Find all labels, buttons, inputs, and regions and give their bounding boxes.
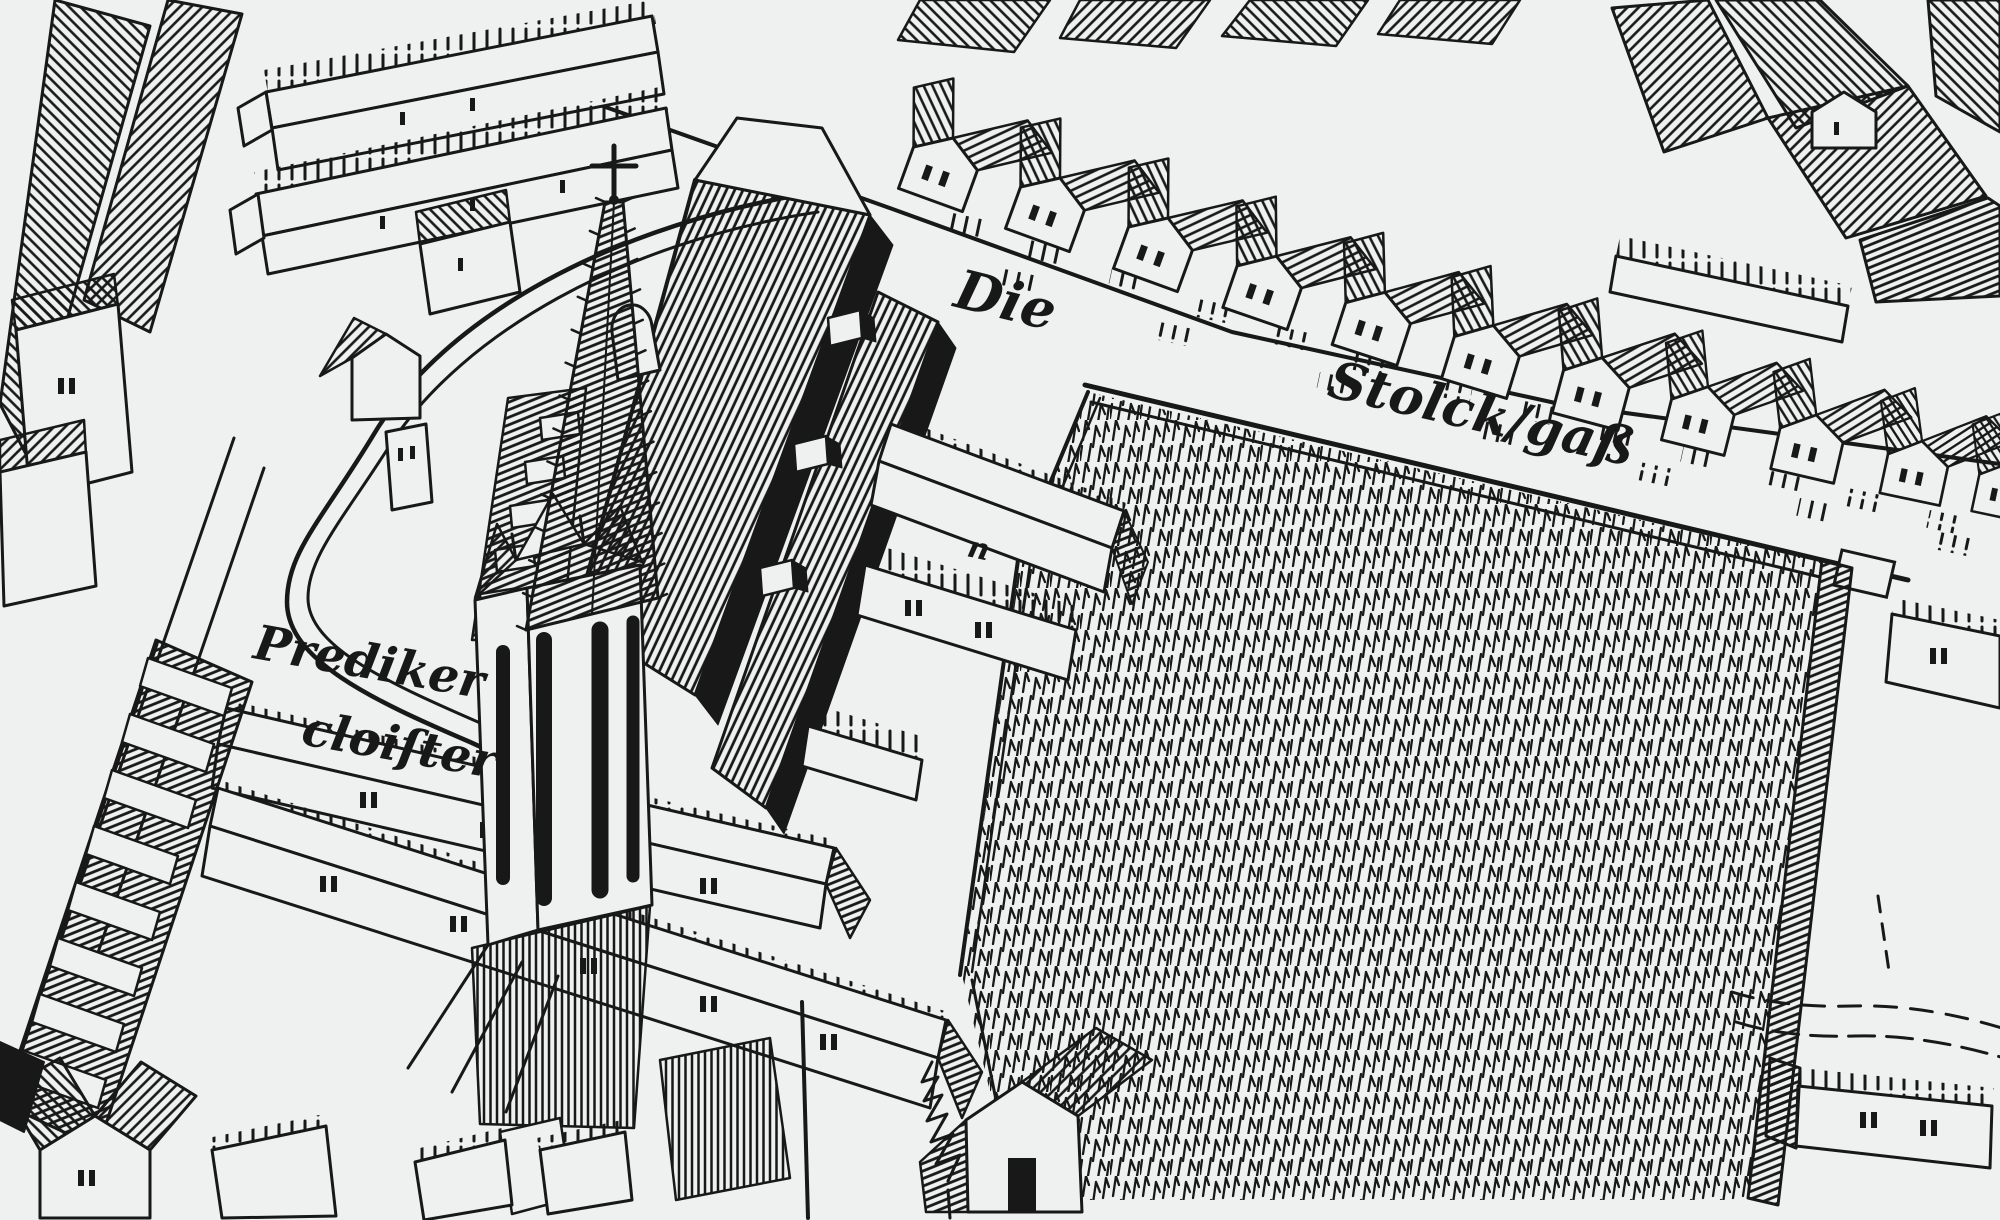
engraved-city-map: Die Stolck/gaß Prediker cloiſter n [0, 0, 2000, 1220]
map-canvas: Die Stolck/gaß Prediker cloiſter n [0, 0, 2000, 1220]
map-artwork [0, 0, 2000, 1220]
